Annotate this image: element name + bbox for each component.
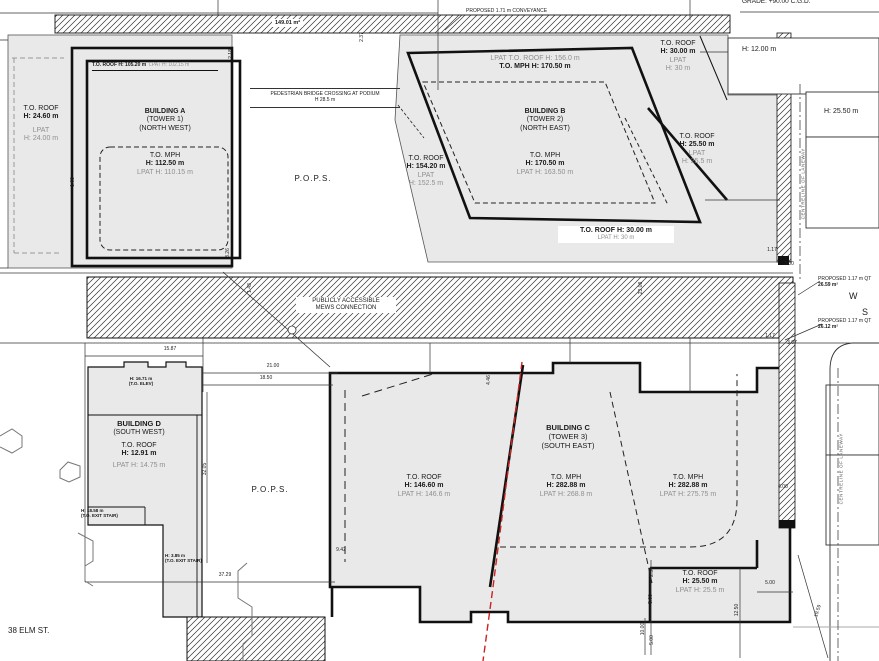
dimension-label: 1.17 (752, 247, 792, 253)
laneway-north-label: CENTRELINE OF LANEWAY (800, 129, 805, 239)
dimension-label: 10.00 (640, 609, 646, 649)
neighbor-outline-1 (0, 429, 22, 453)
dimension-label: 5.00 (648, 579, 654, 619)
laneway-south-label: CENTRELINE OF LANEWAY (838, 414, 843, 524)
bottom-hatch-block (187, 617, 325, 661)
conveyance-right-1: PROPOSED 1.17 m QT 26.59 m² (818, 277, 871, 289)
laneway-hatch-south (779, 283, 795, 528)
building-c-name: BUILDING C (TOWER 3) (SOUTH EAST) (516, 424, 620, 451)
site-plan: GRADE: +90.00 C.G.D. PROPOSED 1.71 m CON… (0, 0, 879, 661)
building-b-mph: T.O. MPH H: 170.50 m LPAT H: 163.50 m (495, 152, 595, 177)
building-a-header-lpat: LPAT H: 102.15 m (149, 62, 189, 68)
street-name-label: 38 ELM ST. (8, 626, 49, 635)
dimension-label: 5.00 (750, 580, 790, 586)
dimension-label: 4.46 (486, 360, 492, 400)
dimension-label: 32.05 (202, 449, 208, 489)
building-c-se-heights: T.O. ROOF H: 25.50 m LPAT H: 25.5 m (655, 570, 745, 595)
grade-note: GRADE: +90.00 C.G.D. (742, 0, 879, 6)
dimension-label: 1.68 (70, 162, 76, 202)
conveyance-hatch-band (55, 15, 730, 33)
dimension-label: 23.08 (638, 268, 644, 308)
plan-linework (0, 0, 879, 661)
dimension-label: 12.50 (734, 590, 740, 630)
dimension-label: 1.17 (750, 333, 790, 339)
building-d-elev-note: H: 16.71 m (T.O. ELEV) (118, 376, 164, 387)
conveyance-right-2: PROPOSED 1.17 m QT 26.12 m² (818, 319, 871, 331)
neighbor-box-4 (826, 455, 879, 545)
building-c-mid-heights: T.O. MPH H: 282.88 m LPAT H: 268.8 m (521, 474, 611, 499)
building-d-outline (88, 362, 202, 617)
dimension-label: 18.50 (246, 375, 286, 381)
hatch-end-cap-south (779, 520, 795, 528)
neighbor-outline-4 (78, 533, 93, 586)
neighbor-outline-2 (60, 462, 80, 482)
dimension-label: 21.00 (253, 363, 293, 369)
parcel-a-heights: T.O. ROOF H: 24.60 m LPAT H: 24.00 m (10, 105, 72, 143)
pedestrian-bridge-note: PEDESTRIAN BRIDGE CROSSING AT PODIUM H 2… (250, 88, 400, 108)
pops-south-label: P.O.P.S. (245, 485, 295, 494)
building-b-west-heights: T.O. ROOF H: 154.20 m LPAT H: 152.5 m (397, 155, 455, 188)
pops-north-label: P.O.P.S. (288, 174, 338, 183)
building-d-stair-note-2: H: 3.85 m (T.O. EXIT STAIR) (165, 553, 221, 564)
building-a-header: T.O. ROOF H: 105.20 m LPAT H: 102.15 m (92, 63, 218, 71)
building-a-header-roof: T.O. ROOF H: 105.20 m (92, 62, 146, 68)
building-b-name: BUILDING B (TOWER 2) (NORTH EAST) (495, 108, 595, 133)
dimension-label: 9.42 (321, 547, 361, 553)
mews-hatch-band (87, 277, 793, 338)
left-edge-ticks (0, 40, 8, 268)
dimension-label: 15.87 (150, 346, 190, 352)
building-d-block: BUILDING D (SOUTH WEST) T.O. ROOF H: 12.… (94, 420, 184, 470)
building-c-east-heights: T.O. MPH H: 282.88 m LPAT H: 275.75 m (643, 474, 733, 499)
building-d-stair-note-1: H: 18.58 m (T.O. EXIT STAIR) (81, 508, 143, 519)
conveyance-top-label: PROPOSED 1.71 m CONVEYANCE (466, 9, 547, 15)
leader-node (288, 326, 296, 334)
dimension-label: 3.07 (772, 340, 812, 346)
building-b-south-heights: T.O. ROOF H: 30.00 m LPAT H: 30 m (558, 226, 674, 243)
dimension-label: 1.43 (247, 268, 253, 308)
mews-label: PUBLICLY ACCESSIBLE MEWS CONNECTION (296, 297, 396, 313)
dimension-label: 3.00 (769, 261, 809, 267)
neighbor-box-3 (826, 385, 879, 455)
neighbor-h12-label: H: 12.00 m (742, 46, 776, 54)
dimension-label: 2.18 (228, 34, 234, 74)
dimension-label: 6.00 (763, 484, 803, 490)
street-letter-w: W (849, 291, 858, 302)
building-c-west-heights: T.O. ROOF H: 146.60 m LPAT H: 146.6 m (379, 474, 469, 499)
building-a-mph: T.O. MPH H: 112.50 m LPAT H: 110.15 m (115, 152, 215, 177)
conveyance-top-area: 149.01 m² (272, 19, 303, 27)
neighbor-h2550-label: H: 25.50 m (824, 108, 858, 116)
dimension-label: 3.26 (225, 233, 231, 273)
dimension-label: 5.00 (649, 620, 655, 660)
building-b-ne-heights: T.O. ROOF H: 30.00 m LPAT H: 30 m (648, 40, 708, 73)
dimension-label: 37.29 (205, 572, 245, 578)
street-letter-s: S (862, 307, 868, 318)
dimension-label: 2.37 (359, 17, 365, 57)
building-b-top-heights: LPAT T.O. ROOF H: 156.0 m T.O. MPH H: 17… (450, 55, 620, 72)
diagonal-dim-se (798, 555, 828, 658)
building-a-name: BUILDING A (TOWER 1) (NORTH WEST) (115, 108, 215, 133)
neighbor-box-2 (806, 137, 879, 228)
building-b-east-heights: T.O. ROOF H: 25.50 m LPAT H: 25.5 m (666, 133, 728, 166)
